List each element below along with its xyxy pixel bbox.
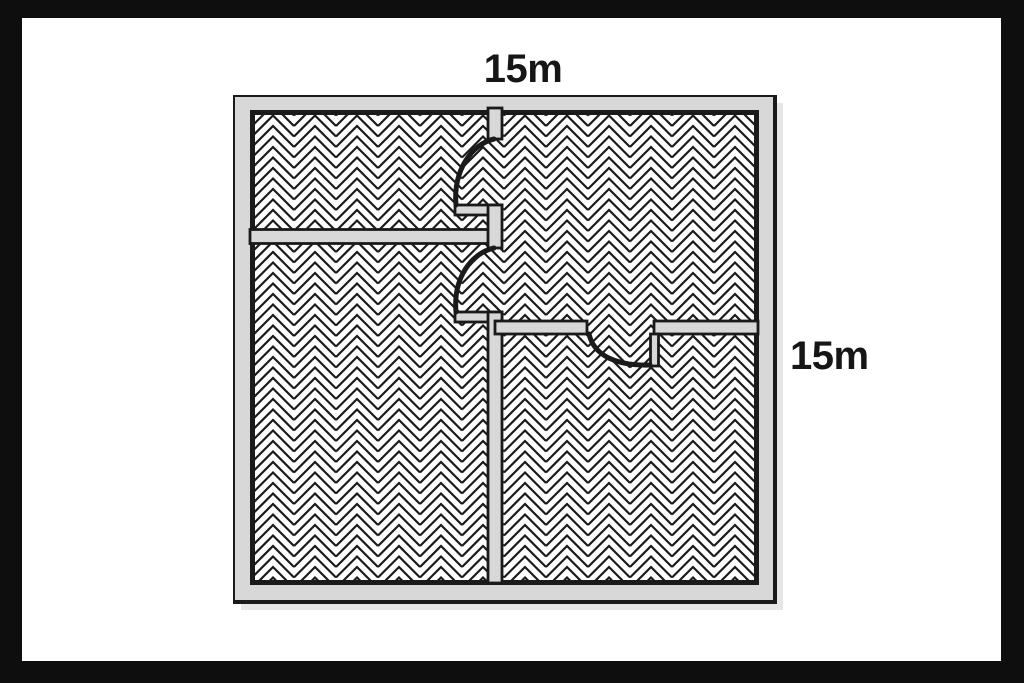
center-wall-bottom-segment — [488, 312, 502, 583]
right-horizontal-wall-right-piece — [654, 321, 758, 334]
left-horizontal-wall — [250, 230, 495, 244]
center-wall-middle-segment — [488, 205, 502, 248]
right-horizontal-wall-left-piece — [495, 321, 587, 334]
right-dimension-label: 15m — [790, 336, 869, 376]
page-background: 15m 15m — [22, 18, 1001, 661]
framed-page: 15m 15m — [0, 0, 1024, 683]
top-dimension-label: 15m — [443, 49, 603, 89]
floor-area — [253, 113, 757, 583]
floor-plan-drawing — [233, 95, 789, 615]
right-door-leaf — [651, 334, 659, 366]
center-wall-top-stub — [488, 108, 502, 139]
